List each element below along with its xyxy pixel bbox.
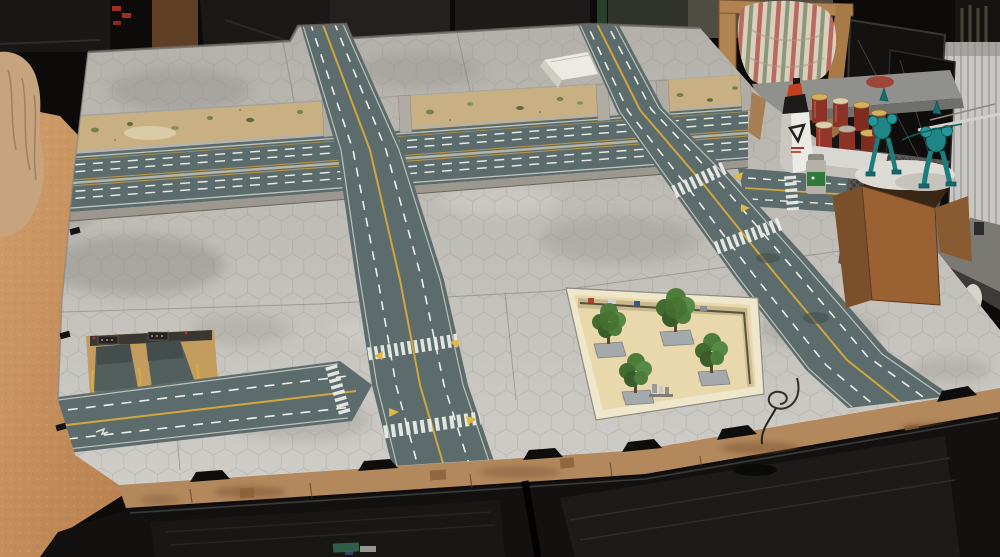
dark-miniature	[974, 222, 984, 235]
garage-sign-2	[148, 332, 168, 340]
bottle-shade	[780, 114, 793, 173]
rocky-patch	[124, 126, 176, 140]
garage-sign-1	[98, 336, 118, 344]
small-jar	[806, 154, 826, 194]
tree-base	[660, 330, 694, 346]
ramp-shade-2	[146, 340, 184, 361]
tree-base	[622, 390, 654, 405]
photo-canvas	[0, 0, 1000, 557]
drawer-handle	[733, 464, 777, 476]
cushion-stripes	[738, 1, 836, 88]
red-cloth	[866, 76, 894, 88]
ramp-shade-1	[96, 344, 132, 365]
small-jar-label	[807, 172, 825, 186]
road-stain-2	[803, 312, 829, 324]
tree-base	[594, 342, 626, 358]
red-light-left	[93, 337, 96, 340]
road-stain-1	[756, 253, 780, 263]
scene-photo	[0, 0, 1000, 557]
tree-base	[698, 370, 730, 386]
label-text-2	[791, 151, 801, 153]
label-dot	[812, 177, 815, 180]
label-text-1	[791, 147, 804, 149]
red-light-right	[185, 332, 188, 335]
